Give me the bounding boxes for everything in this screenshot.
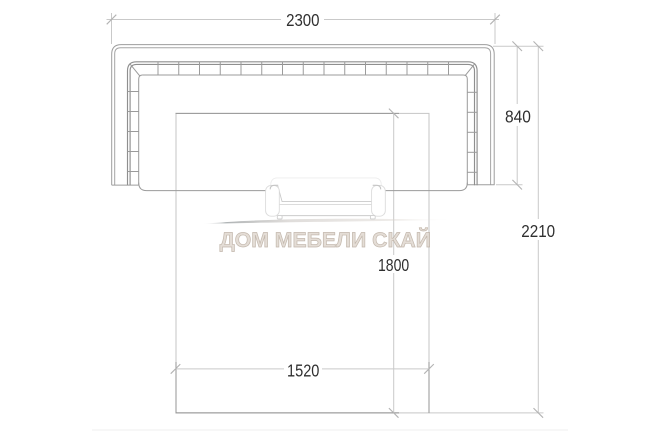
- svg-text:2300: 2300: [286, 10, 320, 30]
- svg-text:840: 840: [505, 107, 531, 127]
- svg-text:ДОМ МЕБЕЛИ СКАЙ: ДОМ МЕБЕЛИ СКАЙ: [220, 228, 431, 252]
- svg-text:2210: 2210: [521, 221, 555, 241]
- svg-text:1520: 1520: [287, 361, 320, 381]
- svg-text:1800: 1800: [378, 255, 409, 275]
